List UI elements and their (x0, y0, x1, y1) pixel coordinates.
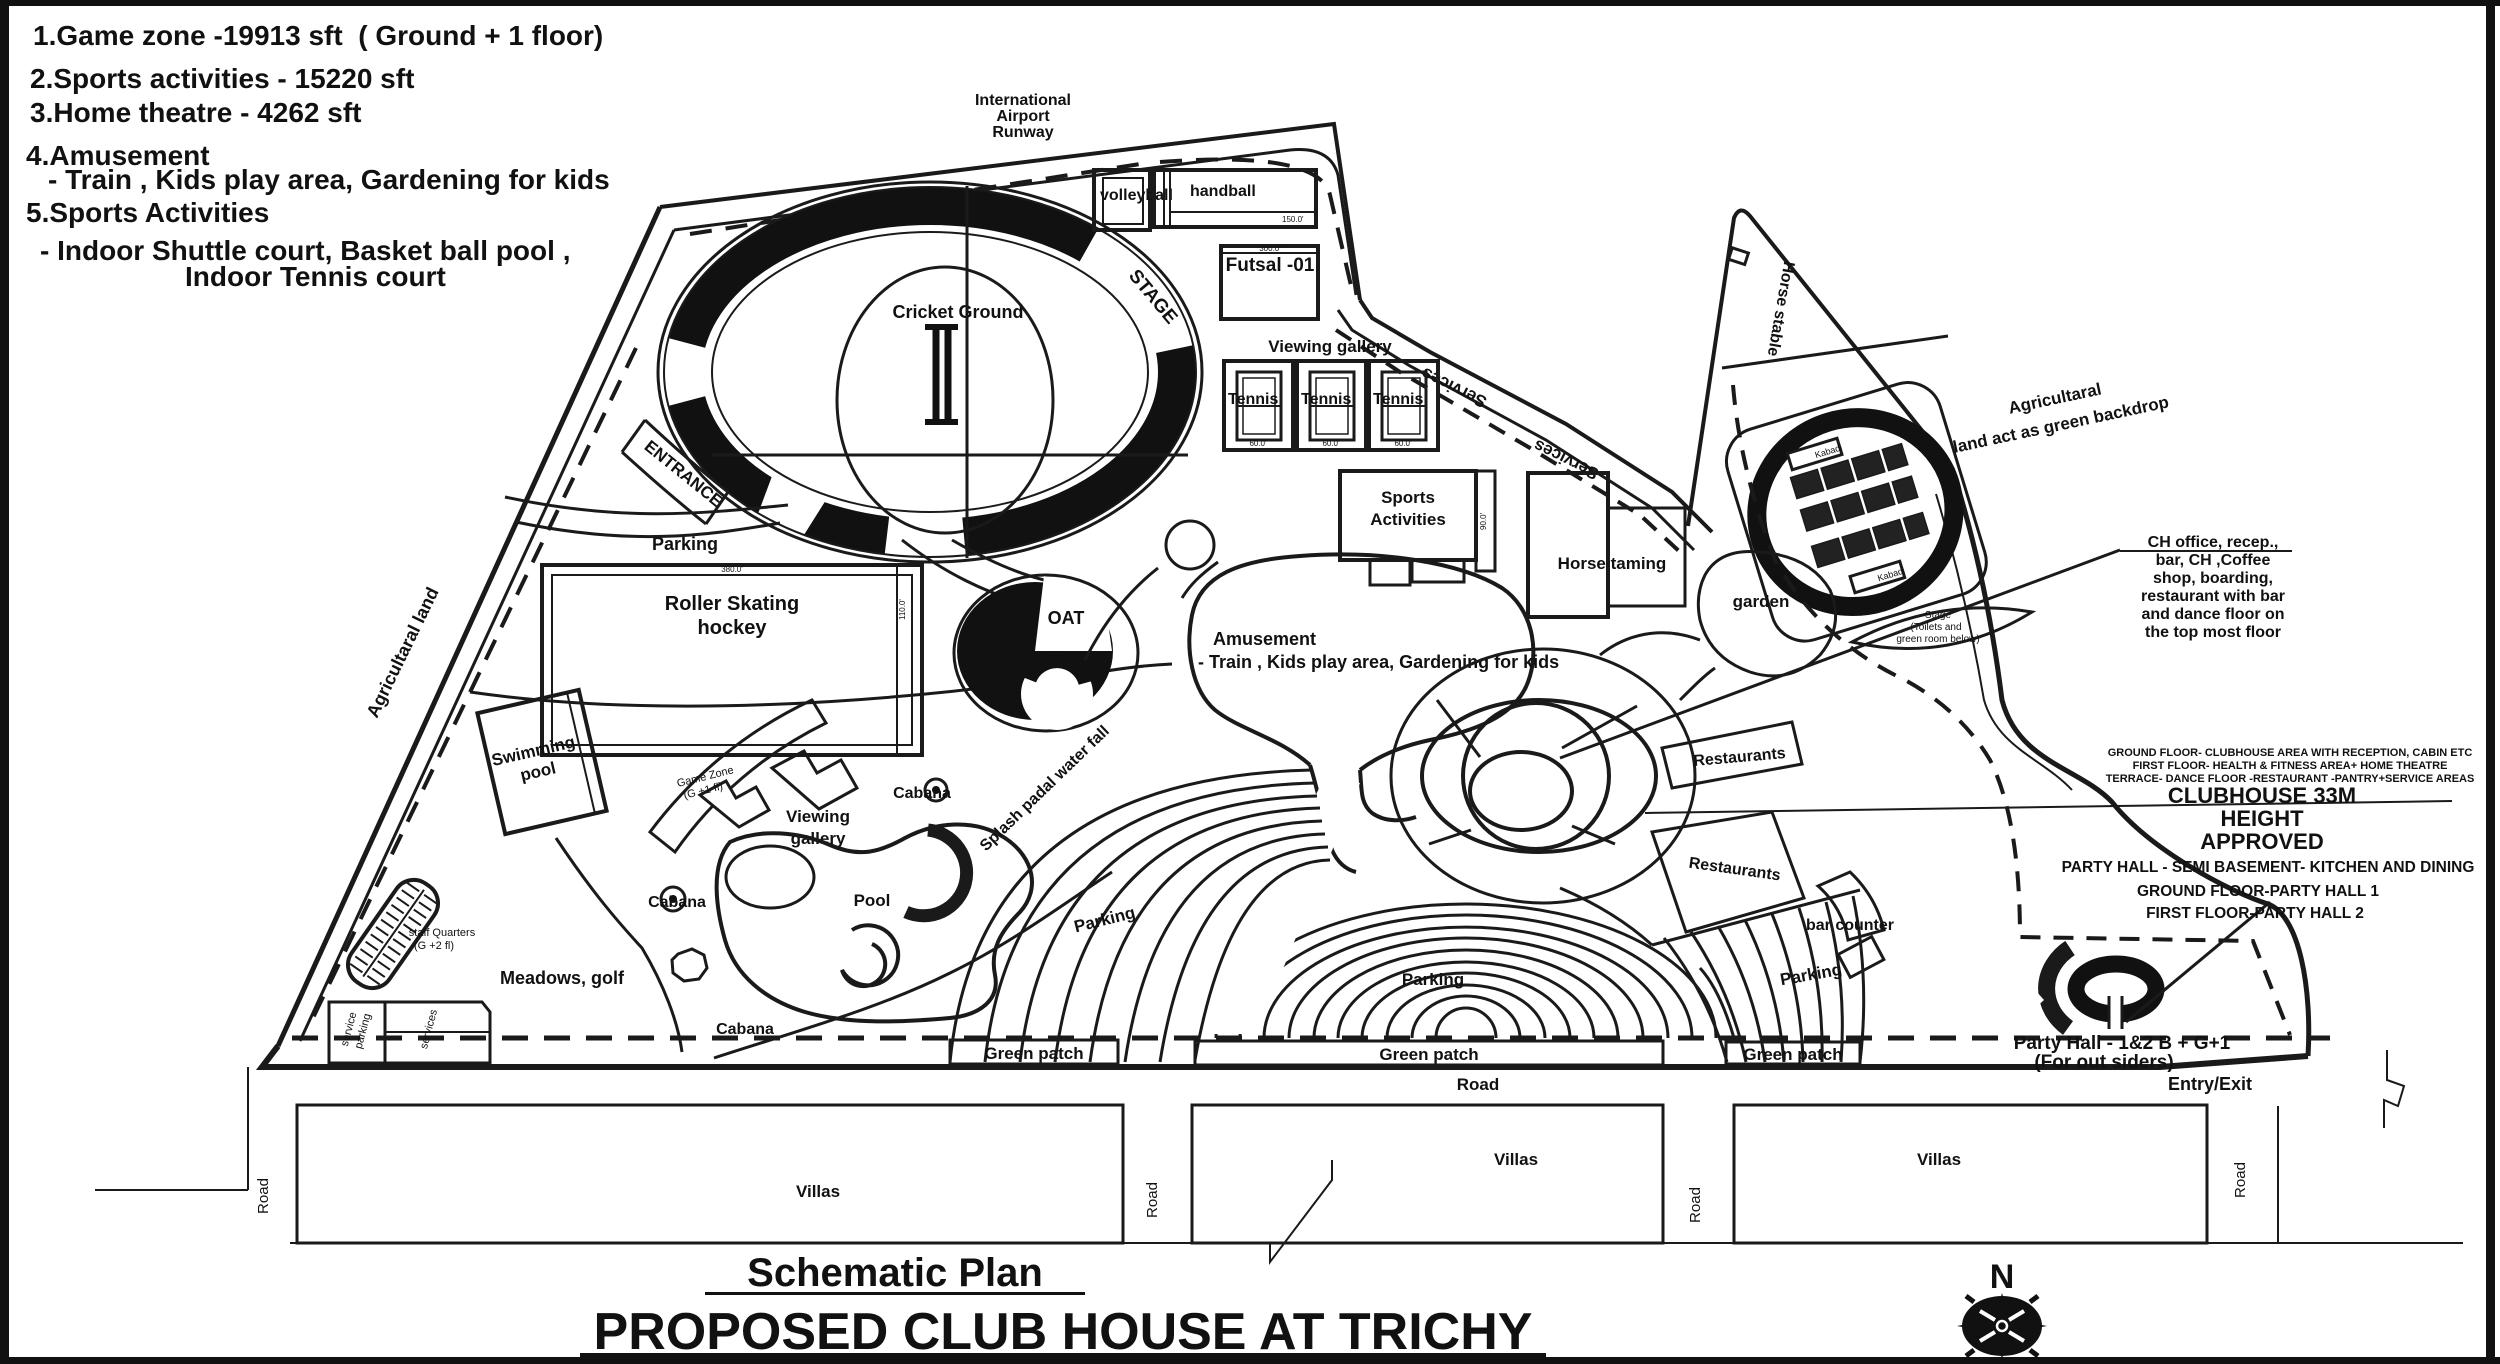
svg-text:bar, CH ,Coffee: bar, CH ,Coffee (2156, 552, 2271, 569)
svg-text:Parking: Parking (1402, 970, 1464, 989)
svg-text:Schematic Plan: Schematic Plan (747, 1251, 1043, 1295)
svg-text:Tennis: Tennis (1373, 391, 1423, 408)
svg-text:Airport: Airport (996, 108, 1050, 125)
svg-text:Cabana: Cabana (648, 894, 706, 911)
svg-text:60.0': 60.0' (1394, 439, 1412, 448)
svg-text:110.0': 110.0' (898, 599, 907, 620)
svg-text:Road: Road (1144, 1182, 1161, 1218)
svg-text:Road: Road (255, 1178, 272, 1214)
svg-text:bar counter: bar counter (1806, 917, 1894, 934)
svg-text:Green patch: Green patch (1379, 1045, 1478, 1064)
svg-text:International: International (975, 92, 1071, 109)
svg-text:FIRST FLOOR- HEALTH & FITNESS: FIRST FLOOR- HEALTH & FITNESS AREA+ HOME… (2133, 760, 2448, 772)
svg-text:300.0': 300.0' (1259, 244, 1281, 253)
svg-text:Amusement: Amusement (1213, 629, 1316, 649)
svg-text:2.Sports activities - 15220 sf: 2.Sports activities - 15220 sft (30, 63, 414, 94)
svg-text:the top most floor: the top most floor (2145, 624, 2281, 641)
svg-text:shop, boarding,: shop, boarding, (2153, 570, 2273, 587)
svg-text:GROUND FLOOR-PARTY HALL 1: GROUND FLOOR-PARTY HALL 1 (2137, 883, 2379, 900)
svg-text:Road: Road (1687, 1187, 1704, 1223)
svg-text:Villas: Villas (1917, 1150, 1961, 1169)
svg-text:Road: Road (1457, 1075, 1500, 1094)
svg-text:Sports: Sports (1381, 488, 1435, 507)
svg-text:Viewing gallery: Viewing gallery (1268, 337, 1392, 356)
svg-text:OAT: OAT (1048, 608, 1085, 628)
svg-text:handball: handball (1190, 183, 1256, 200)
svg-text:restaurant with bar: restaurant with bar (2141, 588, 2285, 605)
svg-text:380.0': 380.0' (721, 565, 743, 574)
svg-text:hockey: hockey (698, 617, 768, 639)
svg-text:Futsal -01: Futsal -01 (1226, 255, 1315, 276)
svg-text:Tennis: Tennis (1228, 391, 1278, 408)
svg-text:Runway: Runway (992, 124, 1053, 141)
svg-text:PROPOSED CLUB HOUSE AT TRICHY: PROPOSED CLUB HOUSE AT TRICHY (594, 1303, 1533, 1361)
svg-text:5.Sports Activities: 5.Sports Activities (26, 197, 269, 228)
svg-text:GROUND FLOOR- CLUBHOUSE AREA W: GROUND FLOOR- CLUBHOUSE AREA WITH RECEPT… (2108, 747, 2473, 759)
svg-text:90.0': 90.0' (1479, 512, 1488, 530)
svg-text:Cricket Ground: Cricket Ground (892, 302, 1023, 322)
svg-text:FIRST FLOOR-PARTY HALL 2: FIRST FLOOR-PARTY HALL 2 (2146, 905, 2364, 922)
svg-text:green room below): green room below) (1896, 634, 1979, 645)
svg-text:Viewing: Viewing (786, 807, 850, 826)
svg-text:staff Quarters: staff Quarters (409, 927, 476, 939)
svg-text:60.0': 60.0' (1249, 439, 1267, 448)
svg-text:PARTY HALL - SEMI BASEMENT- K: PARTY HALL - SEMI BASEMENT- KITCHEN AND … (2062, 859, 2475, 876)
svg-text:CLUBHOUSE 33M: CLUBHOUSE 33M (2168, 783, 2356, 808)
svg-text:Tennis: Tennis (1301, 391, 1351, 408)
svg-text:HEIGHT: HEIGHT (2220, 806, 2304, 831)
svg-text:1.Game zone -19913 sft ( Grou: 1.Game zone -19913 sft ( Ground + 1 floo… (33, 20, 603, 51)
svg-text:Indoor Tennis court: Indoor Tennis court (185, 261, 446, 292)
svg-text:Road: Road (2232, 1162, 2249, 1198)
svg-text:Horse taming: Horse taming (1558, 554, 1667, 573)
svg-text:- Train , Kids play area, Gard: - Train , Kids play area, Gardening for … (1198, 652, 1559, 672)
svg-text:Green patch: Green patch (1743, 1045, 1842, 1064)
svg-text:Cabana: Cabana (893, 785, 951, 802)
svg-text:and dance floor on: and dance floor on (2141, 606, 2284, 623)
svg-text:CH office, recep.,: CH office, recep., (2148, 534, 2279, 551)
svg-text:Villas: Villas (796, 1182, 840, 1201)
svg-text:(G +2 fl): (G +2 fl) (414, 940, 454, 952)
svg-text:150.0': 150.0' (1282, 215, 1304, 224)
svg-text:Villas: Villas (1494, 1150, 1538, 1169)
svg-text:Entry/Exit: Entry/Exit (2168, 1074, 2252, 1094)
svg-text:60.0': 60.0' (1322, 439, 1340, 448)
svg-text:garden: garden (1733, 592, 1790, 611)
svg-text:APPROVED: APPROVED (2200, 829, 2323, 854)
svg-text:Activities: Activities (1370, 510, 1446, 529)
svg-text:N: N (1990, 1258, 2015, 1296)
svg-text:(For out siders): (For out siders) (2034, 1052, 2173, 1073)
svg-text:Roller Skating: Roller Skating (665, 593, 799, 615)
svg-text:- Train , Kids play area, Gard: - Train , Kids play area, Gardening for … (48, 164, 610, 195)
svg-text:Party Hall - 1&2 B + G+1: Party Hall - 1&2 B + G+1 (2014, 1033, 2231, 1054)
svg-text:Pool: Pool (854, 891, 891, 910)
svg-text:volleyball: volleyball (1100, 187, 1173, 204)
svg-text:Meadows, golf: Meadows, golf (500, 968, 625, 988)
svg-text:Green patch: Green patch (984, 1044, 1083, 1063)
svg-text:Cabana: Cabana (716, 1021, 774, 1038)
svg-text:3.Home theatre - 4262 sft: 3.Home theatre - 4262 sft (30, 97, 361, 128)
